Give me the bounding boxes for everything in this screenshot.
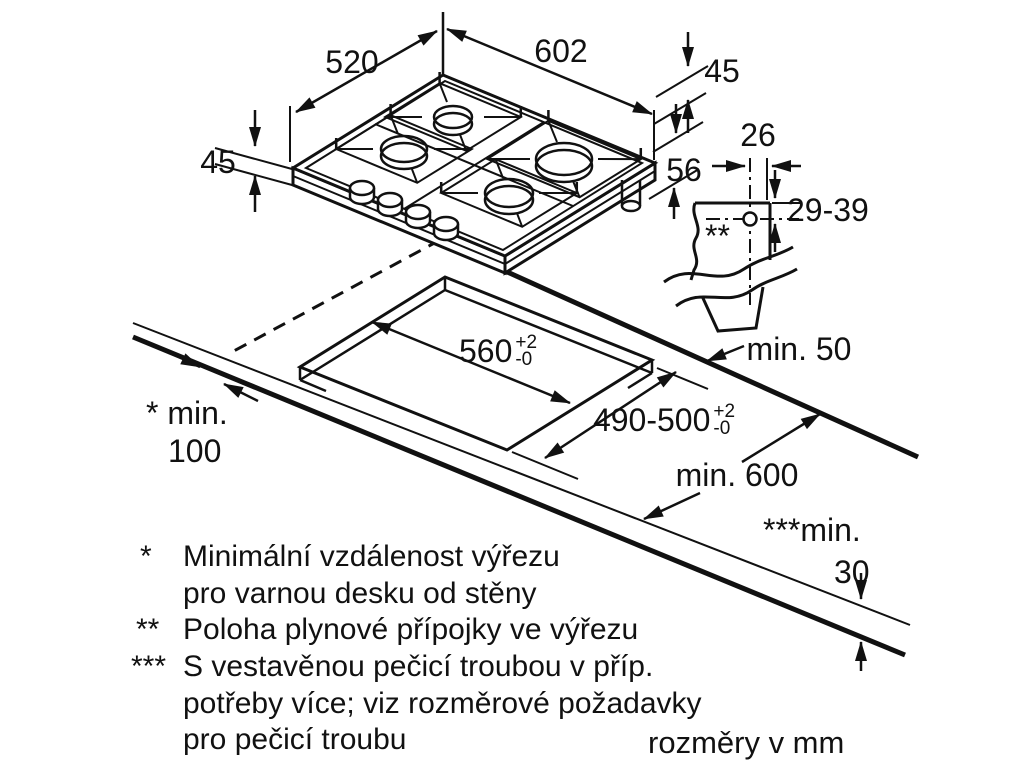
- gas-connection-marker: **: [705, 220, 730, 254]
- projection-dashed-line: [232, 240, 440, 352]
- footnote-1-line-2: pro varnou desku od stěny: [183, 577, 537, 611]
- cutout-width-tol-minus: -0: [515, 351, 537, 368]
- cutout-depth-tol-minus: -0: [713, 420, 735, 437]
- dim-cutout-depth: 490-500 +2 -0: [593, 404, 735, 438]
- hob-isometric-view: [293, 72, 655, 273]
- footnote-3-line-1: S vestavěnou pečicí troubou v příp.: [183, 650, 653, 684]
- control-knob: [406, 205, 430, 219]
- footnote-marker-2: **: [136, 613, 159, 647]
- dim-gas-offset-y: 29-39: [787, 194, 869, 228]
- footnote-marker-3: ***: [131, 650, 166, 684]
- footnote-3-line-3: pro pečicí troubu: [183, 723, 406, 757]
- dim-worktop-depth: min. 600: [676, 459, 799, 493]
- dim-appliance-width: 602: [534, 35, 587, 69]
- dim-side-clearance: * min. 100: [146, 394, 228, 471]
- installation-diagram: 602 520 45 45 56 26 29-39 ** 560 +2 -0 4…: [0, 0, 1024, 768]
- dim-rear-clearance: min. 50: [747, 333, 852, 367]
- dim-appliance-depth: 520: [325, 46, 378, 80]
- units-note: rozměry v mm: [648, 725, 844, 761]
- dim-worktop-thickness-line2: 30: [834, 556, 870, 590]
- footnote-1-line-1: Minimální vzdálenost výřezu: [183, 540, 560, 574]
- dim-height-above-left: 45: [200, 146, 236, 180]
- dim-height-above-right: 45: [704, 55, 740, 89]
- cutout-width-value: 560: [459, 335, 512, 369]
- cutout-depth-value: 490-500: [593, 404, 710, 438]
- footnote-2-line-1: Poloha plynové přípojky ve výřezu: [183, 613, 638, 647]
- dim-depth-below: 56: [666, 154, 702, 188]
- side-clearance-line2: 100: [146, 432, 228, 470]
- dim-gas-offset-x: 26: [740, 119, 776, 153]
- side-clearance-line1: * min.: [146, 394, 228, 432]
- dim-cutout-width: 560 +2 -0: [459, 335, 537, 369]
- control-knob: [378, 193, 402, 207]
- footnote-marker-1: *: [140, 540, 152, 574]
- control-knob: [350, 181, 374, 195]
- rear-clearance-arrow: [707, 346, 744, 361]
- gas-connection-point: [744, 213, 757, 226]
- footnote-3-line-2: potřeby více; viz rozměrové požadavky: [183, 687, 702, 721]
- dim-worktop-thickness-line1: ***min.: [763, 514, 861, 548]
- control-knob: [434, 217, 458, 231]
